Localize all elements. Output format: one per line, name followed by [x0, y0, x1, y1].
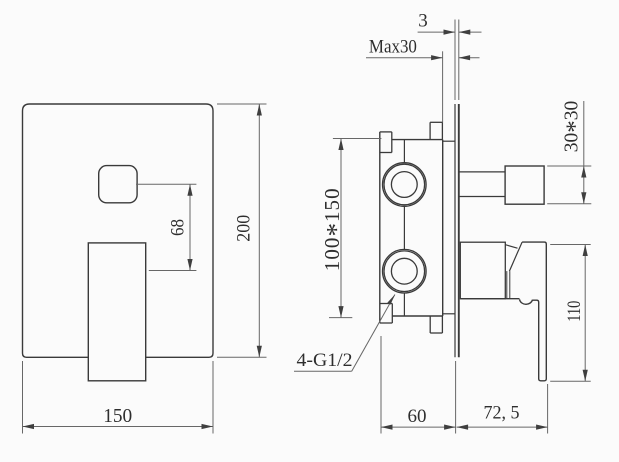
svg-text:4-G1/2: 4-G1/2 — [297, 350, 353, 371]
svg-text:72, 5: 72, 5 — [484, 403, 520, 424]
svg-text:110: 110 — [564, 301, 585, 322]
svg-text:60: 60 — [408, 406, 427, 427]
svg-text:3: 3 — [418, 11, 428, 32]
svg-text:100*150: 100*150 — [320, 187, 351, 271]
svg-text:Max30: Max30 — [369, 37, 417, 58]
svg-text:200: 200 — [234, 215, 255, 242]
svg-text:150: 150 — [103, 405, 132, 427]
svg-text:30*30: 30*30 — [562, 101, 590, 152]
svg-text:68: 68 — [168, 219, 189, 236]
